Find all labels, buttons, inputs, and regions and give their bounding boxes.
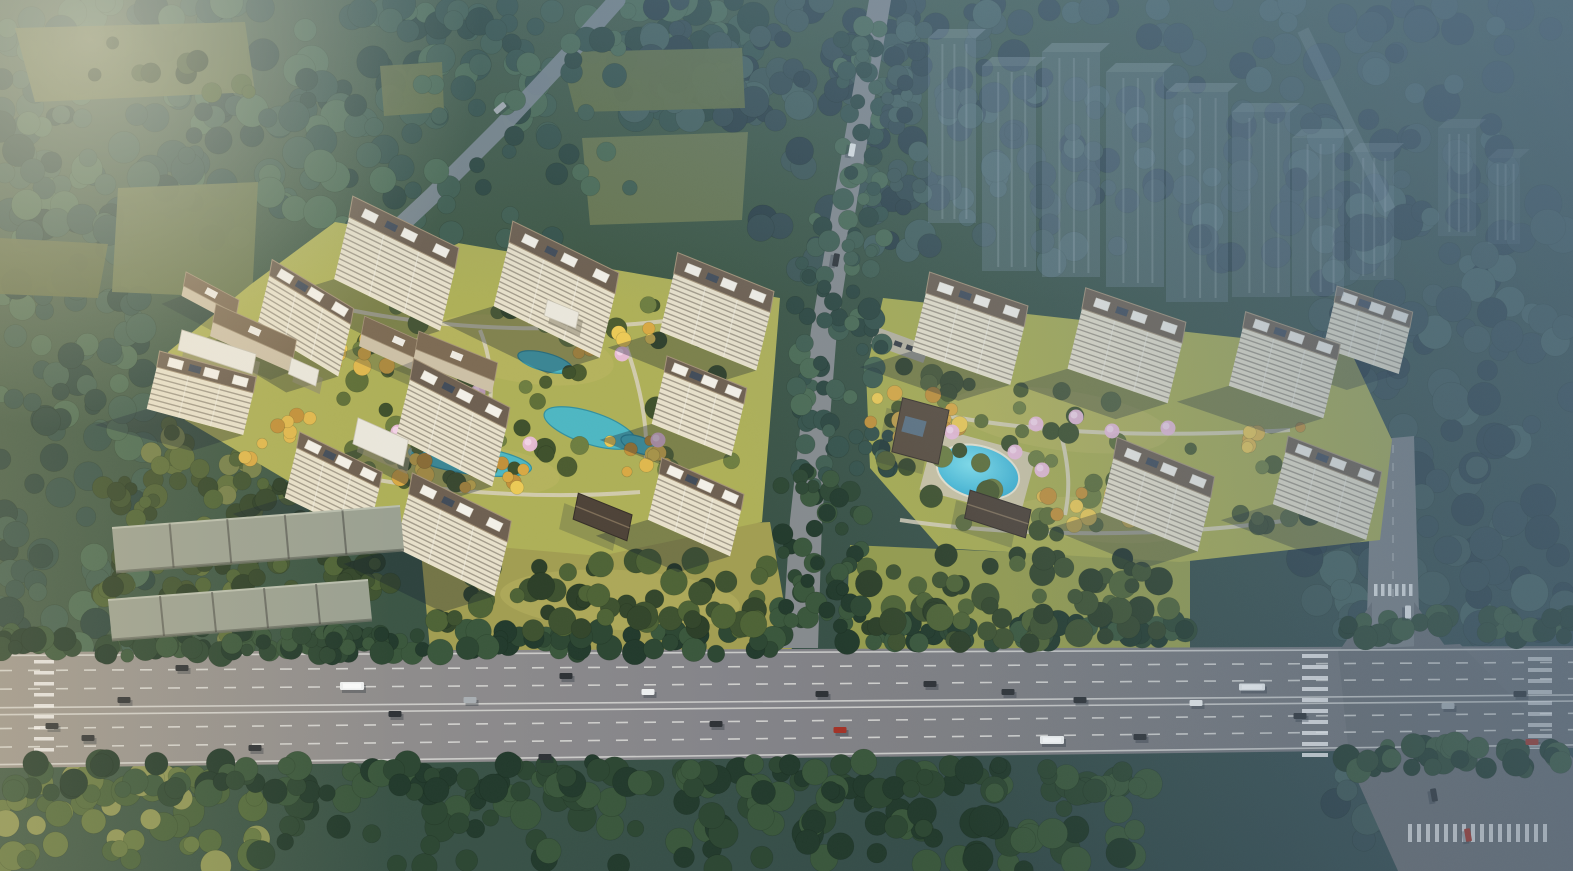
aerial-rendering: Aerial architectural rendering of a twin… <box>0 0 1573 871</box>
film-grain-overlay <box>0 0 1573 871</box>
scene-svg: Aerial architectural rendering of a twin… <box>0 0 1573 871</box>
